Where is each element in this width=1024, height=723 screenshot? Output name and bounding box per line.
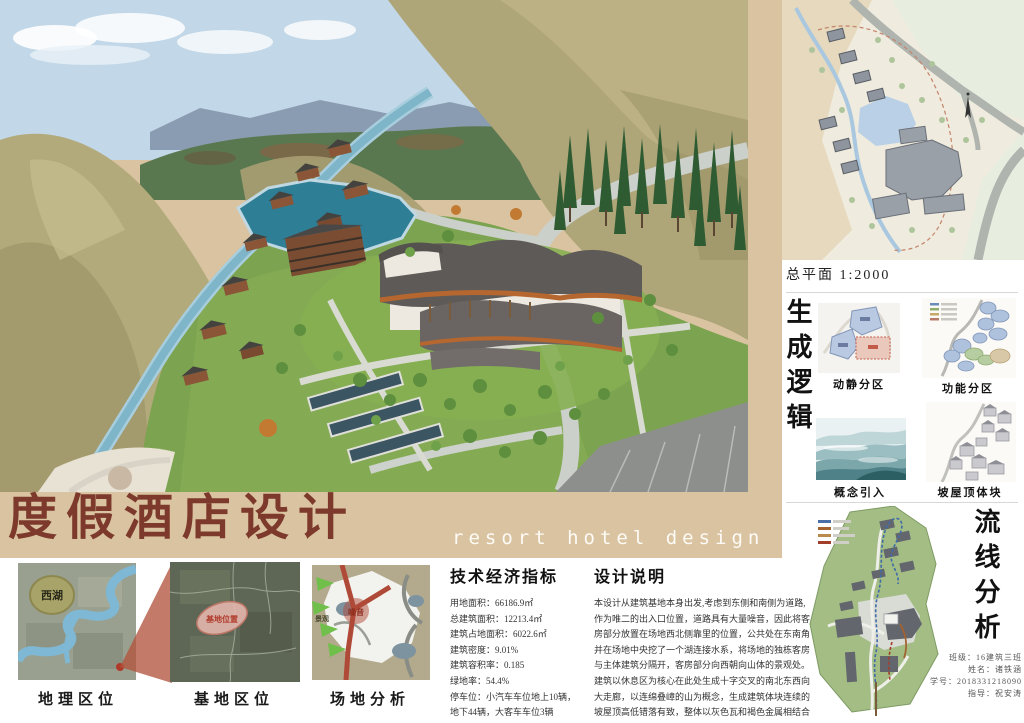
circulation-heading: 流线分析 bbox=[970, 508, 1000, 668]
indicator-line: 地下44辆，大客车车位3辆 bbox=[450, 705, 600, 721]
credit-id: 学号：2018331218090 bbox=[880, 676, 1022, 688]
site-analysis-caption: 场地分析 bbox=[310, 688, 430, 709]
description-line: 本设计从建筑基地本身出发,考虑到东侧和南侧为道路, bbox=[594, 596, 806, 612]
description-line: 与主体建筑分隔开，客房部分向西朝向山体的景观处。 bbox=[594, 658, 806, 674]
indicator-line: 绿地率：54.4% bbox=[450, 674, 600, 690]
site-position-label: 基地位置 bbox=[205, 614, 238, 624]
indicator-line: 建筑密度：9.01% bbox=[450, 643, 600, 659]
concept-label: 概念引入 bbox=[814, 484, 906, 500]
westlake-label: 西湖 bbox=[41, 588, 63, 602]
description-line: 作为唯二的出入口位置，道路具有大量噪音，因此将客 bbox=[594, 612, 806, 628]
description-line: 建筑以休息区为核心在此处生成十字交叉的南北东西向 bbox=[594, 674, 806, 690]
indicator-line: 建筑容积率：0.185 bbox=[450, 658, 600, 674]
indicators-heading: 技术经济指标 bbox=[450, 563, 600, 587]
geo-location-caption: 地理区位 bbox=[18, 688, 138, 709]
zoning-dynamic-static-label: 动静分区 bbox=[816, 376, 902, 392]
indicator-line: 建筑占地面积：6022.6㎡ bbox=[450, 627, 600, 643]
description-heading: 设计说明 bbox=[594, 563, 806, 587]
roof-massing-thumb bbox=[926, 402, 1016, 487]
poster-title-en: resort hotel design bbox=[452, 527, 764, 549]
description-line: 并在场地中央挖了一个湖连接水系，将场地的独栋客房 bbox=[594, 643, 806, 659]
description-line: 大走廊，以连绵叠嶂的山为概念，生成建筑体块连续的 bbox=[594, 690, 806, 706]
noise-label: 噪音 bbox=[348, 607, 364, 617]
indicator-line: 停车位：小汽车车位地上10辆， bbox=[450, 690, 600, 706]
credit-advisor: 指导：祝安涛 bbox=[880, 688, 1022, 700]
description-line: 坡屋顶高低错落有致，整体以灰色瓦和褐色金属相结合 bbox=[594, 705, 806, 721]
poster-title-cn: 度假酒店设计 bbox=[8, 488, 478, 548]
zoom-wedge bbox=[120, 563, 172, 688]
generation-logic-heading: 生成逻辑 bbox=[782, 298, 812, 448]
credits-block: 班级：16建筑三班 姓名：诸铁涵 学号：2018331218090 指导：祝安涛 bbox=[880, 652, 1022, 700]
technical-indicators: 技术经济指标 用地面积：66186.9㎡ 总建筑面积：12213.4㎡ 建筑占地… bbox=[450, 563, 600, 721]
indicator-line: 用地面积：66186.9㎡ bbox=[450, 596, 600, 612]
credit-class: 班级：16建筑三班 bbox=[880, 652, 1022, 664]
site-location-caption: 基地区位 bbox=[168, 688, 300, 709]
indicator-line: 总建筑面积：12213.4㎡ bbox=[450, 612, 600, 628]
master-plan-drawing bbox=[782, 0, 1024, 265]
divider bbox=[786, 292, 1018, 293]
divider bbox=[786, 502, 1018, 503]
site-analysis-map: 噪音 景观 bbox=[312, 565, 430, 685]
master-plan-caption: 总平面 1:2000 bbox=[786, 264, 890, 284]
zoning-functional-thumb bbox=[922, 298, 1016, 383]
zoning-functional-label: 功能分区 bbox=[920, 380, 1016, 396]
site-location-map: 基地位置 bbox=[170, 562, 300, 687]
concept-mountains-thumb bbox=[816, 418, 906, 485]
geo-location-map: 西湖 bbox=[18, 563, 136, 685]
credit-name: 姓名：诸铁涵 bbox=[880, 664, 1022, 676]
aerial-render-illustration bbox=[0, 0, 748, 492]
zoning-dynamic-static-thumb bbox=[818, 303, 900, 378]
roof-massing-label: 坡屋顶体块 bbox=[922, 484, 1018, 500]
design-description: 设计说明 本设计从建筑基地本身出发,考虑到东侧和南侧为道路, 作为唯二的出入口位… bbox=[594, 563, 806, 721]
view-label: 景观 bbox=[314, 614, 329, 623]
description-line: 房部分放置在场地西北侧靠里的位置，公共处在东南角 bbox=[594, 627, 806, 643]
main-aerial-render bbox=[0, 0, 748, 492]
